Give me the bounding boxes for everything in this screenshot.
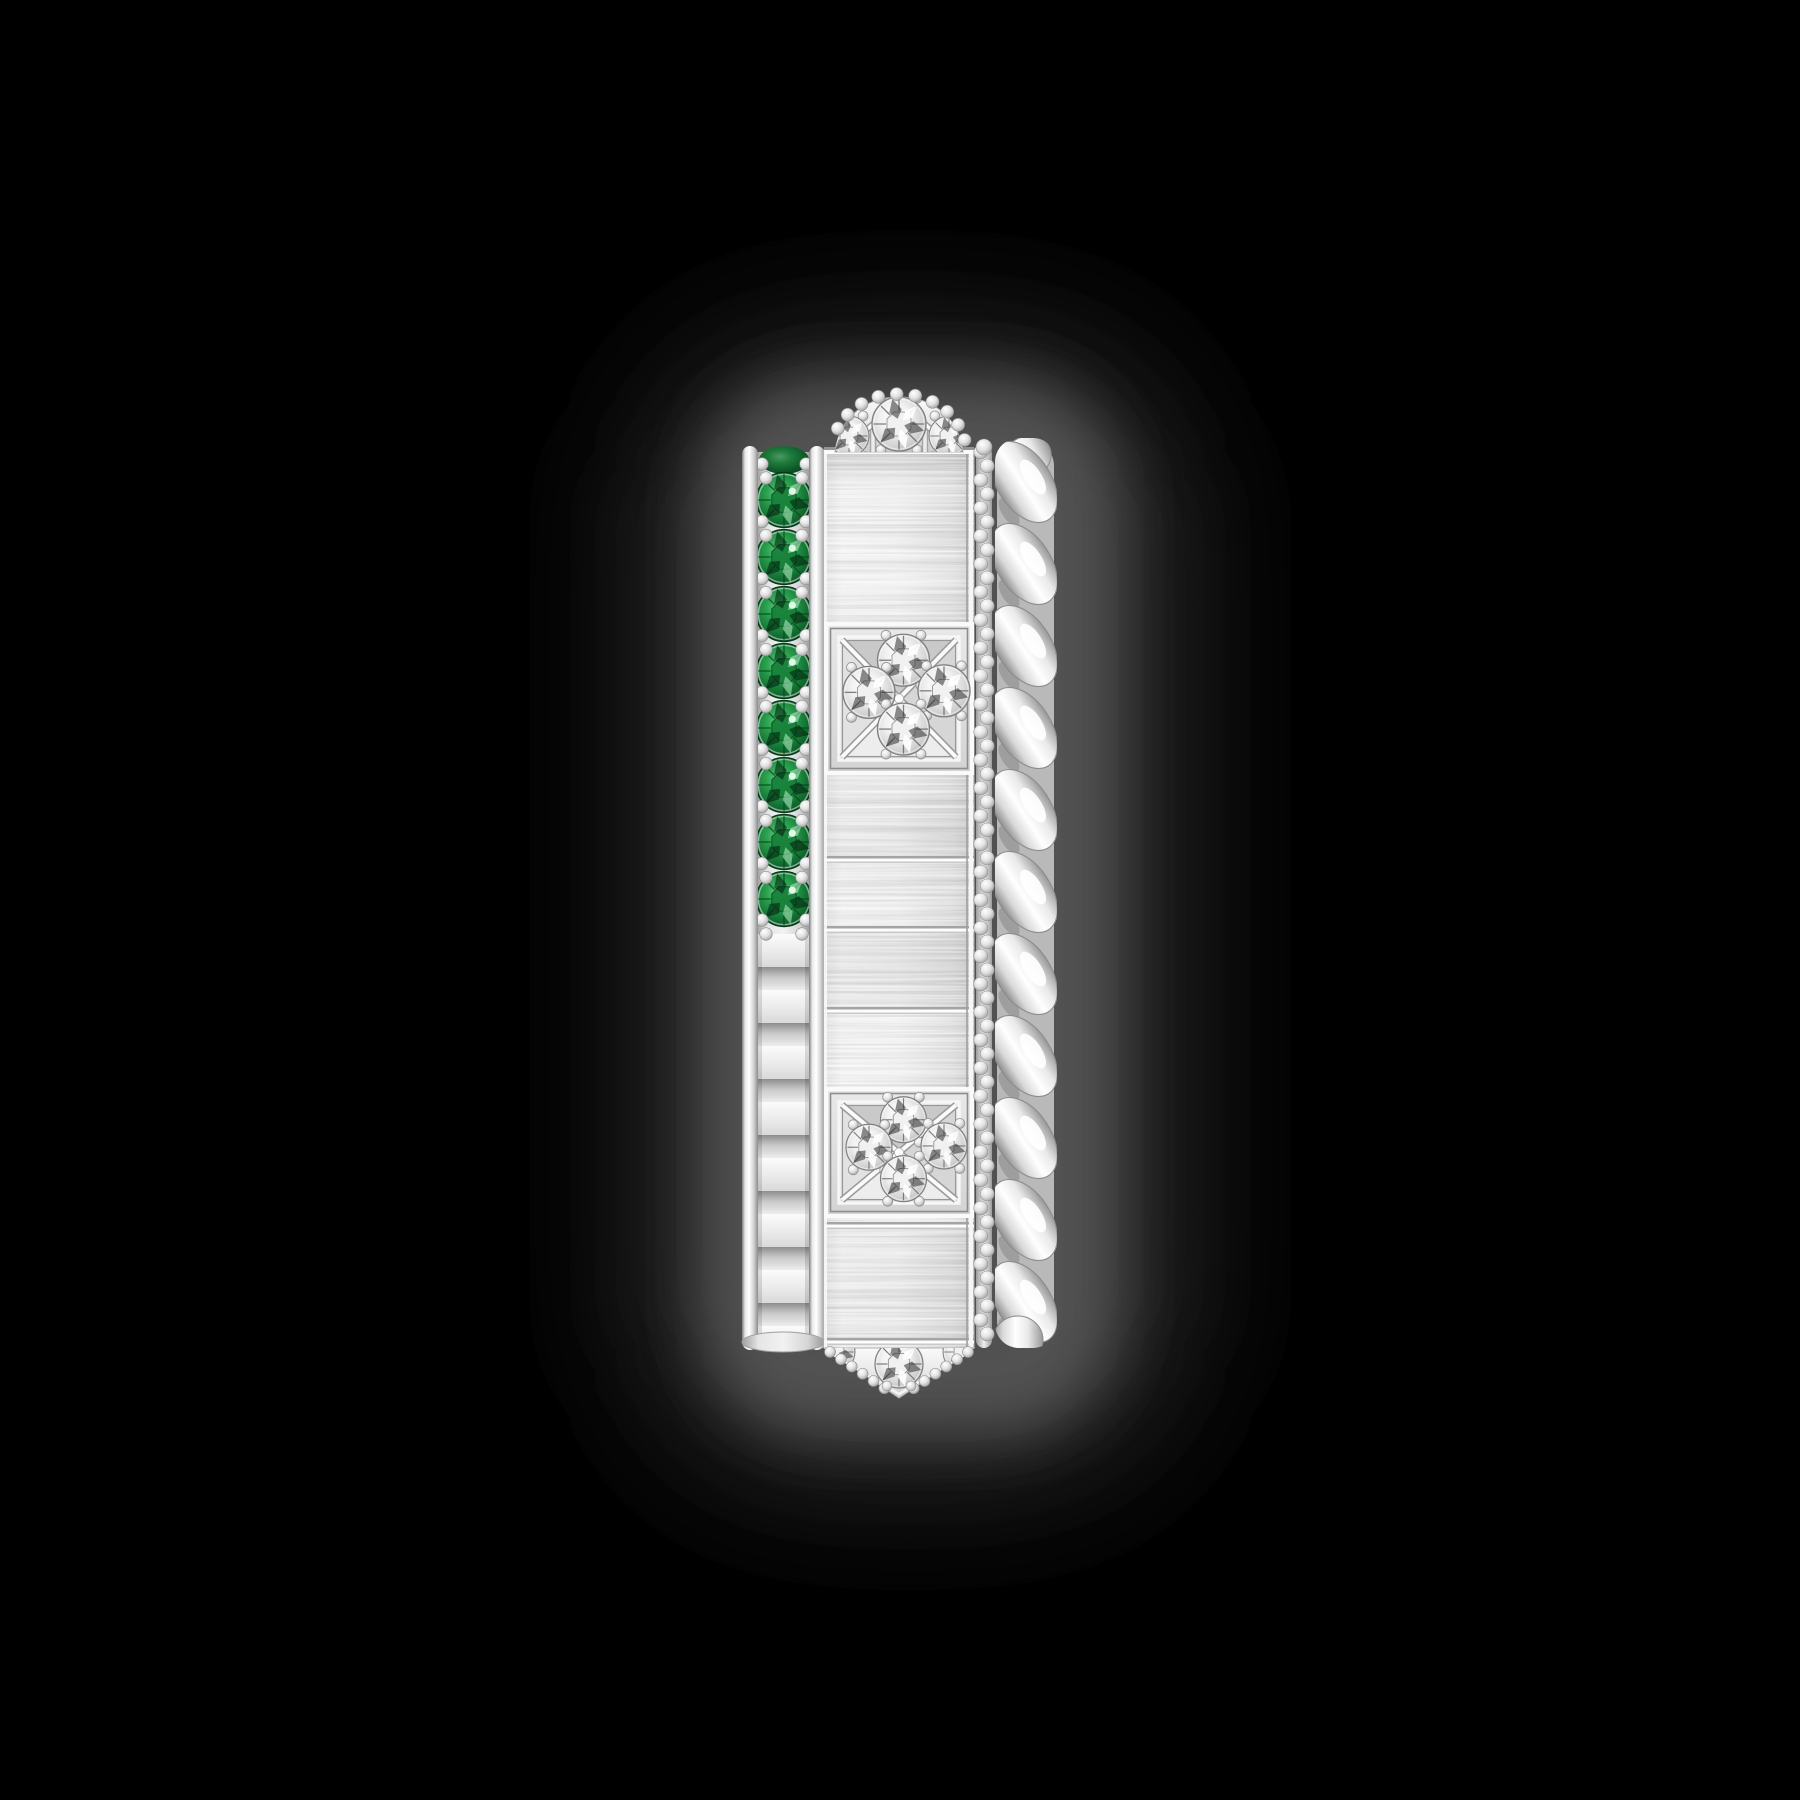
gem-sparkle (907, 1168, 913, 1174)
wire-bead (980, 1103, 994, 1117)
wire-bead (980, 907, 994, 921)
diamond-stone (878, 703, 930, 755)
wire-bead (980, 991, 994, 1005)
dome-rim-bead (841, 408, 854, 421)
milgrain-bead (760, 757, 773, 770)
gem-sparkle (873, 1137, 879, 1143)
product-image-canvas (0, 0, 1800, 1800)
chevron-edge-bead (825, 1347, 836, 1358)
wire-bead (980, 1019, 994, 1033)
milgrain-bead (796, 928, 809, 941)
wire-bead (980, 1131, 994, 1145)
ring-side-view-image (0, 0, 1800, 1800)
milgrain-bead (760, 814, 773, 827)
gem-sparkle (904, 412, 911, 419)
gem-sparkle (789, 716, 796, 723)
dome-rim-bead (952, 418, 965, 431)
dome-rim-bead (890, 388, 903, 401)
wire-bead (980, 1243, 994, 1257)
seam-soft-line (824, 932, 974, 934)
seam-dark-line (824, 1338, 974, 1341)
facet-bright (757, 990, 810, 1023)
wire-bead (974, 585, 988, 599)
wire-bead (974, 809, 988, 823)
outer-rail (742, 446, 758, 1350)
seam-bright-line (824, 1010, 974, 1013)
dome-rim-bead (941, 405, 954, 418)
wire-bead (974, 753, 988, 767)
wire-bead (974, 557, 988, 571)
seam-soft-line (824, 1013, 974, 1015)
wire-bead (980, 739, 994, 753)
milgrain-bead (796, 643, 809, 656)
dome-rim-bead (855, 397, 868, 410)
milgrain-bead (760, 700, 773, 713)
facet-bevel (757, 1079, 810, 1102)
wire-bead (974, 641, 988, 655)
wire-bead (974, 977, 988, 991)
wire-bead (980, 459, 994, 473)
facet-bright (757, 1046, 810, 1079)
milgrain-bead (796, 757, 809, 770)
wire-bead (980, 767, 994, 781)
milgrain-bead (796, 529, 809, 542)
wire-bead (974, 1145, 988, 1159)
chevron-edge-bead (963, 1347, 974, 1358)
milgrain-bead (760, 871, 773, 884)
wire-bead (974, 1173, 988, 1187)
wire-bead (980, 1271, 994, 1285)
dome-rim-bead (926, 395, 939, 408)
seam-dark-line (824, 1007, 974, 1010)
chevron-edge-bead (857, 1368, 868, 1379)
wire-bead (980, 1299, 994, 1313)
milgrain-bead (796, 586, 809, 599)
seam-dark-line (824, 926, 974, 929)
seam-bright-line (824, 1225, 974, 1228)
wire-bead (980, 515, 994, 529)
seam-bright-line (824, 1341, 974, 1344)
wire-bead (974, 1061, 988, 1075)
wire-bead (974, 781, 988, 795)
wire-bead (980, 1215, 994, 1229)
diamond-stud (824, 1087, 974, 1218)
wire-bead (980, 795, 994, 809)
facet-bright (757, 1102, 810, 1135)
chevron-edge-bead (846, 1361, 857, 1372)
gem-sparkle (789, 773, 796, 780)
chevron-bead (882, 1381, 892, 1391)
milgrain-bead (760, 586, 773, 599)
wire-top-bead (976, 439, 992, 455)
wire-bead (980, 655, 994, 669)
wire-bead (974, 1117, 988, 1131)
diamond-stud (824, 622, 974, 775)
wire-bead (980, 627, 994, 641)
wire-bead (980, 711, 994, 725)
seam-soft-line (824, 1228, 974, 1230)
faceted-inner-band (757, 934, 810, 1359)
wire-bead (974, 837, 988, 851)
dome-rim-bead (958, 433, 971, 446)
gem-sparkle (789, 488, 796, 495)
gem-sparkle (948, 1136, 954, 1142)
wire-bead (980, 487, 994, 501)
wire-bead (974, 669, 988, 683)
gem-sparkle (789, 659, 796, 666)
brushed-stud-band (815, 388, 983, 1398)
diamond-stone (918, 665, 970, 717)
wire-bead (974, 1089, 988, 1103)
inner-rail (809, 446, 825, 1350)
gem-sparkle (873, 681, 880, 688)
seam-dark-line (824, 856, 974, 859)
milgrain-bead (760, 643, 773, 656)
wire-bead (980, 1187, 994, 1201)
facet-bevel (757, 1135, 810, 1158)
dome-rim-bead (831, 422, 844, 435)
milgrain-bead (796, 814, 809, 827)
milgrain-bead (796, 871, 809, 884)
seam-bright-line (824, 859, 974, 862)
wire-bead (974, 949, 988, 963)
facet-bevel (757, 1023, 810, 1046)
wire-bead (974, 1229, 988, 1243)
wire-bead (974, 1201, 988, 1215)
wire-bead (980, 935, 994, 949)
dome-rim-bead (872, 390, 885, 403)
wire-bead (974, 865, 988, 879)
wire-bead (980, 599, 994, 613)
facet-bright (757, 1214, 810, 1247)
wire-bead (974, 1313, 988, 1327)
seam-dark-line (824, 1222, 974, 1225)
wire-bead (980, 1075, 994, 1089)
milgrain-bead (796, 472, 809, 485)
chevron-edge-bead (919, 1376, 930, 1387)
gem-sparkle (852, 427, 857, 432)
gem-sparkle (903, 1353, 909, 1359)
wire-bead (974, 529, 988, 543)
diamond-stone (881, 1156, 927, 1202)
facet-bright (757, 1158, 810, 1191)
wire-bead (980, 543, 994, 557)
facet-bevel (757, 1303, 810, 1326)
milgrain-bead (760, 529, 773, 542)
wire-bead (974, 1033, 988, 1047)
facet-bevel (757, 1191, 810, 1214)
emerald-pave-band (742, 446, 825, 1359)
wire-bead (980, 1159, 994, 1173)
seam-bright-line (824, 929, 974, 932)
gem-sparkle (908, 717, 915, 724)
wire-bead (974, 1005, 988, 1019)
wire-bead (974, 893, 988, 907)
page: { "page": { "background_color": "#000000… (0, 0, 1800, 1800)
chevron-edge-bead (941, 1361, 952, 1372)
chevron-edge-bead (930, 1368, 941, 1379)
seam-soft-line (824, 1344, 974, 1346)
wire-bead (974, 1257, 988, 1271)
facet-bevel (757, 967, 810, 990)
wire-bead (974, 473, 988, 487)
milgrain-bead (760, 928, 773, 941)
milgrain-bead (760, 472, 773, 485)
seam-soft-line (824, 862, 974, 864)
wire-bead (974, 613, 988, 627)
gem-sparkle (908, 649, 915, 656)
dome-rim-bead (909, 389, 922, 402)
wire-bead (980, 963, 994, 977)
diamond-stone (872, 397, 926, 451)
diamond-stone (921, 1123, 967, 1169)
stud-apex (895, 694, 904, 703)
band-bottom-cap (742, 1332, 824, 1352)
gem-sparkle (789, 830, 796, 837)
wire-bead (980, 823, 994, 837)
gem-sparkle (789, 602, 796, 609)
gem-sparkle (789, 545, 796, 552)
chevron-edge-bead (952, 1354, 963, 1365)
wire-bead (980, 1047, 994, 1061)
chevron-bead (906, 1381, 916, 1391)
beaded-wire (974, 439, 994, 1348)
facet-bevel (757, 1247, 810, 1270)
milgrain-bead (796, 700, 809, 713)
wire-bead (974, 725, 988, 739)
wire-bead (980, 851, 994, 865)
wire-bead (980, 1327, 994, 1341)
wire-bead (974, 697, 988, 711)
wire-bead (974, 501, 988, 515)
diamond-stone (846, 1124, 892, 1170)
gem-sparkle (907, 1109, 913, 1115)
gem-sparkle (948, 679, 955, 686)
gem-sparkle (789, 887, 796, 894)
facet-bright (757, 1270, 810, 1303)
wire-bead (980, 683, 994, 697)
wire-bead (974, 1285, 988, 1299)
wire-bead (980, 879, 994, 893)
chevron-edge-bead (868, 1376, 879, 1387)
chevron-edge-bead (835, 1354, 846, 1365)
wire-bead (974, 921, 988, 935)
wire-bead (980, 571, 994, 585)
